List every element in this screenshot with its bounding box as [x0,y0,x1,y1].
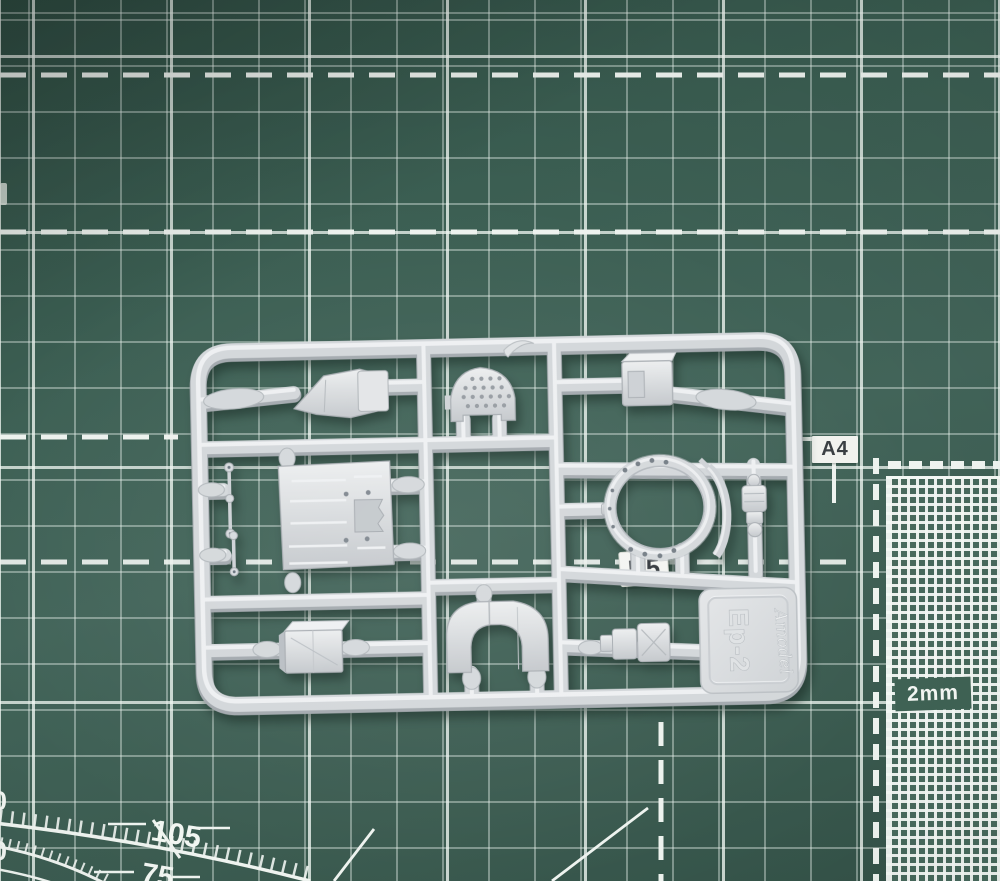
part-bracket [293,369,388,419]
protractor-inner-number: 75 [139,857,176,881]
protractor-edge-digit-top: 0 [0,786,7,816]
protractor-scale: 105 75 0 0 [0,786,648,881]
mat-edge-mark [0,183,7,205]
protractor-edge-digit-bottom: 0 [0,836,7,866]
part-knob [742,474,767,537]
part-bottom-left-box [278,621,349,674]
part-top-right-box [622,353,677,406]
model-kit-sprue: B5 [172,313,828,733]
tag-part-code: Ep-2 [723,608,755,673]
protractor-radial-line-left [334,829,374,881]
sprue-tag: Ep-2 Amodel [699,587,799,694]
part-perforated-dome [444,367,515,422]
fine-grid-scale-label: 2mm [894,677,971,712]
part-arch-bulkhead [446,600,549,672]
protractor-radial-line-right [552,808,648,881]
photo-sprue-on-cutting-mat: 105 75 0 0 2mm A4 B5 [0,0,1000,881]
part-floor-panel [278,461,394,570]
fine-grid-top-dashes [888,461,1000,469]
